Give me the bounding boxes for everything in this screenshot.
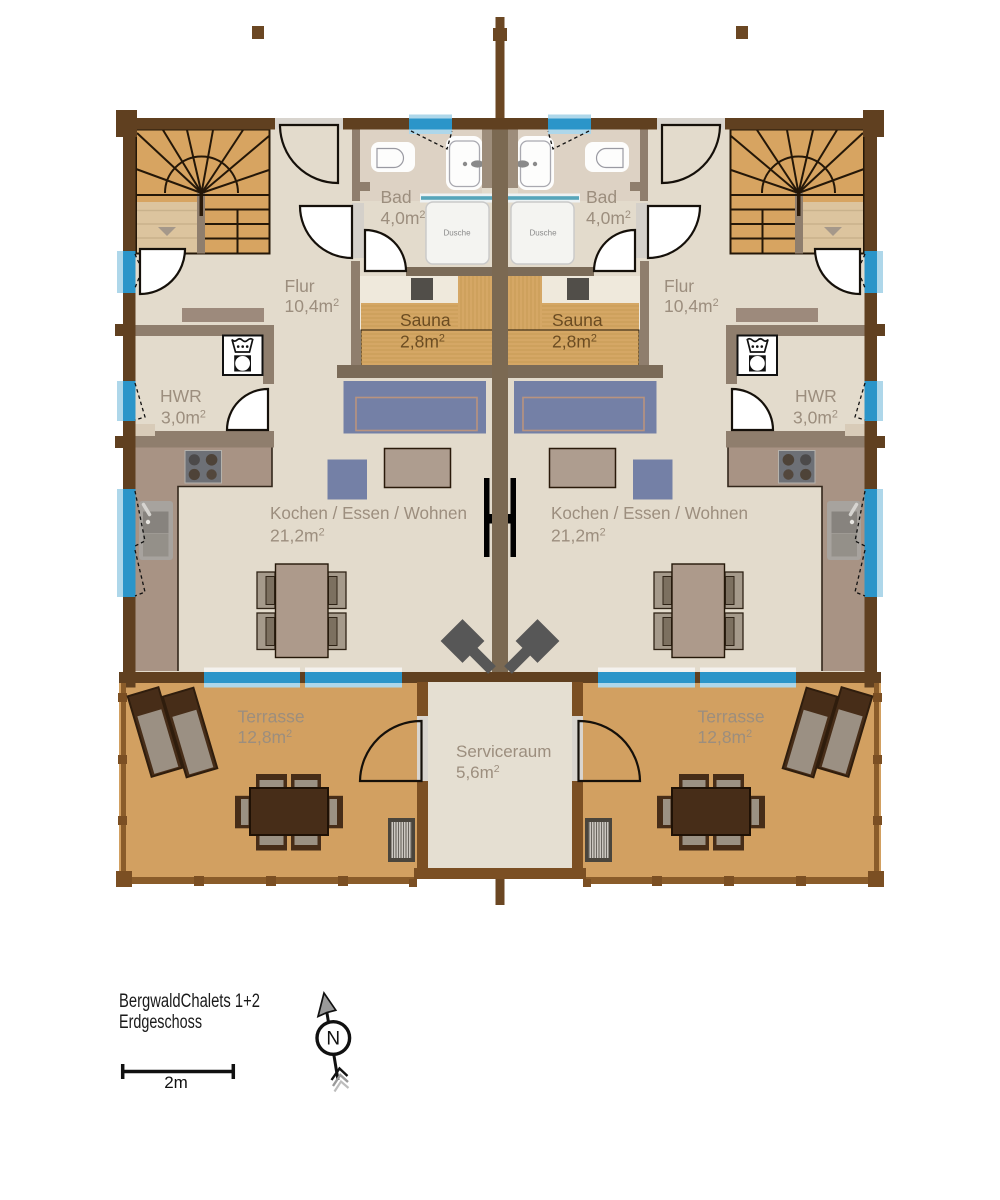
svg-text:HWR: HWR [795,386,837,406]
svg-text:Flur: Flur [664,276,694,296]
svg-text:21,2m2: 21,2m2 [551,526,606,546]
svg-text:N: N [326,1029,340,1050]
svg-text:Dusche: Dusche [443,229,471,238]
svg-text:Bad: Bad [586,187,617,207]
svg-text:2,8m2: 2,8m2 [400,332,445,352]
svg-text:12,8m2: 12,8m2 [238,727,293,747]
svg-text:3,0m2: 3,0m2 [793,408,838,428]
svg-text:Flur: Flur [285,276,315,296]
svg-text:10,4m2: 10,4m2 [285,296,340,316]
svg-text:10,4m2: 10,4m2 [664,296,719,316]
svg-text:Kochen / Essen / Wohnen: Kochen / Essen / Wohnen [551,503,748,523]
svg-text:Sauna: Sauna [552,310,603,330]
svg-text:Serviceraum: Serviceraum [456,742,551,761]
svg-text:Dusche: Dusche [529,229,557,238]
svg-text:Sauna: Sauna [400,310,451,330]
svg-text:HWR: HWR [160,386,202,406]
svg-text:5,6m2: 5,6m2 [456,763,500,782]
svg-text:BergwaldChalets 1+2: BergwaldChalets 1+2 [119,991,260,1012]
svg-text:Bad: Bad [381,187,412,207]
svg-text:2m: 2m [164,1073,188,1092]
svg-text:Terrasse: Terrasse [238,707,305,727]
svg-text:12,8m2: 12,8m2 [698,727,753,747]
svg-text:Kochen / Essen / Wohnen: Kochen / Essen / Wohnen [270,503,467,523]
svg-text:4,0m2: 4,0m2 [381,208,426,228]
svg-text:3,0m2: 3,0m2 [161,408,206,428]
svg-text:21,2m2: 21,2m2 [270,526,325,546]
svg-text:4,0m2: 4,0m2 [586,208,631,228]
svg-text:2,8m2: 2,8m2 [552,332,597,352]
svg-text:Terrasse: Terrasse [698,707,765,727]
svg-text:Erdgeschoss: Erdgeschoss [119,1012,202,1033]
